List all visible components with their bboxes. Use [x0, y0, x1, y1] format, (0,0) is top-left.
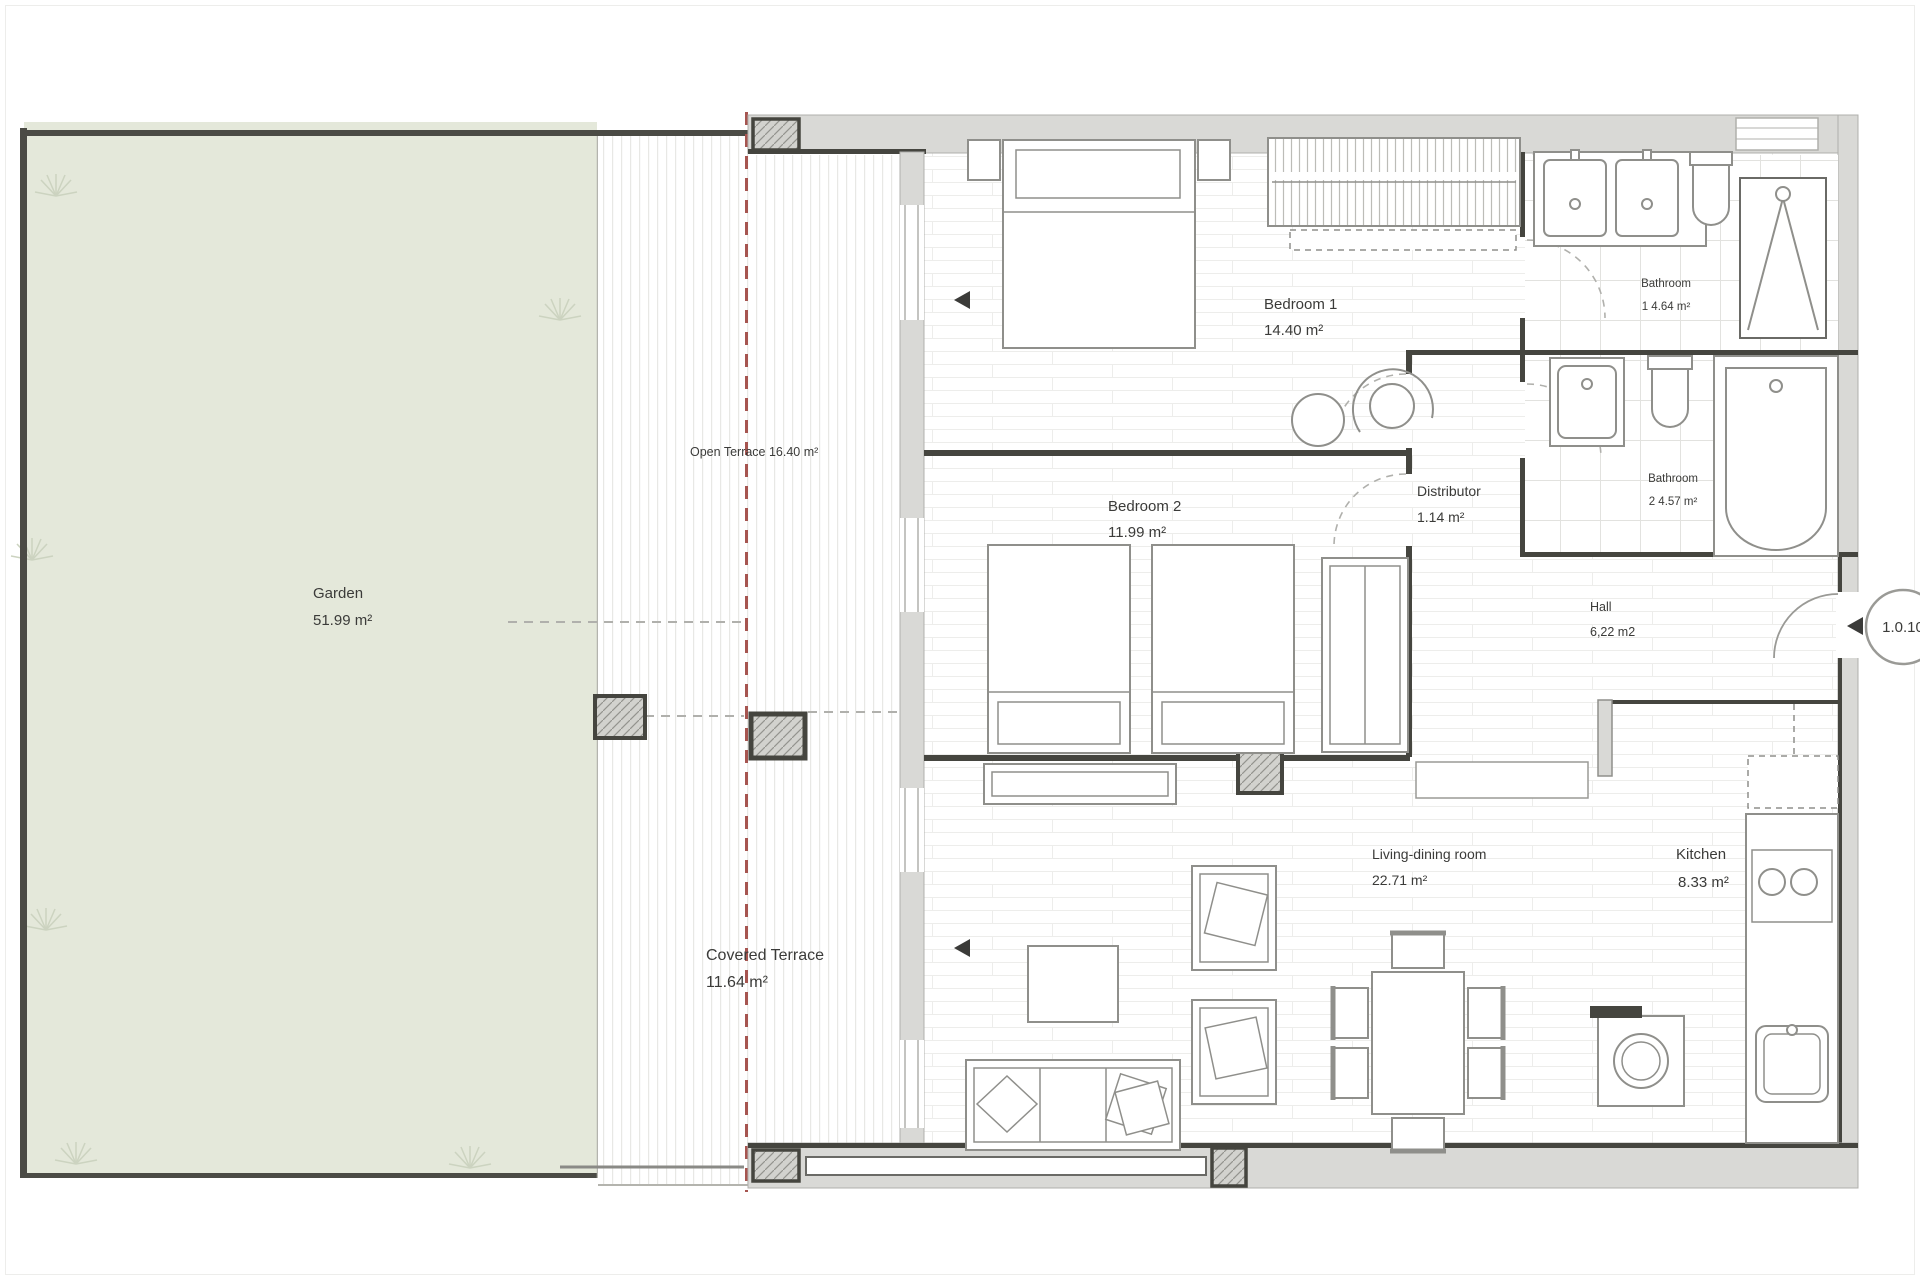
kitchen-sink-inner — [1764, 1034, 1820, 1094]
garden-area — [24, 122, 597, 1178]
bathroom2-label: Bathroom — [1648, 473, 1698, 485]
bathroom1-window — [1736, 118, 1818, 150]
armchair-2 — [1192, 1000, 1276, 1104]
wall-bath1-left-b — [1520, 318, 1525, 350]
armchair-1 — [1192, 866, 1276, 970]
toilet1-cistern — [1690, 152, 1732, 165]
covered-terrace-area: 11.64 m² — [706, 974, 769, 991]
chair-seat — [1370, 384, 1414, 428]
hall-label: Hall — [1590, 600, 1612, 614]
bed-pillow — [1016, 150, 1180, 198]
wall-kitchen-stub — [1598, 700, 1612, 776]
sink-2-tap — [1643, 150, 1651, 160]
covered-terrace-label: Covered Terrace — [706, 947, 824, 964]
toilet2-cistern — [1648, 356, 1692, 369]
hob-burner-2 — [1791, 869, 1817, 895]
washer-wall-stub — [1590, 1006, 1642, 1018]
bedroom2-furniture — [988, 545, 1408, 753]
bathroom1-area: 1 4.64 m² — [1642, 301, 1691, 313]
kitchen-area: 8.33 m² — [1678, 874, 1729, 891]
kitchen-upper-cabinet-dashed — [1748, 756, 1838, 808]
coffee-table — [1028, 946, 1118, 1022]
floor-plan-drawing: 1.0.10 Garden 51.99 m² Open Terrace 16.4… — [0, 0, 1920, 1280]
bottom-wall-window — [806, 1157, 1206, 1175]
sink-1-drain — [1570, 199, 1580, 209]
terrace-decking-right — [748, 155, 902, 1143]
column-top — [753, 119, 799, 150]
wall-bedroom1-bedroom2 — [924, 450, 1410, 456]
sink-2-drain — [1642, 199, 1652, 209]
toilet1-bowl — [1693, 165, 1729, 225]
window-bedroom1 — [900, 205, 924, 320]
dining-table — [1372, 972, 1464, 1114]
hall-sideboard — [1416, 762, 1588, 798]
bathroom1-label: Bathroom — [1641, 278, 1691, 290]
living-area: 22.71 m² — [1372, 872, 1428, 888]
bedroom1-label: Bedroom 1 — [1264, 296, 1337, 313]
sideboard-inner — [992, 772, 1168, 796]
wall-bedroom2-living — [924, 755, 1410, 761]
bathroom2-area: 2 4.57 m² — [1649, 496, 1698, 508]
wall-bath1-bath2 — [1520, 350, 1858, 355]
wall-bedroom1-distributor — [1406, 350, 1524, 355]
sink-3 — [1558, 366, 1616, 438]
dining-chair-left-1 — [1334, 988, 1368, 1038]
sink-3-drain — [1582, 379, 1592, 389]
single-bed-1-pillow — [998, 702, 1120, 744]
wall-distributor-stub-2 — [1406, 448, 1412, 474]
wall-bath2-left-a — [1520, 355, 1525, 382]
dining-chair-right-1 — [1468, 988, 1502, 1038]
window-living-1 — [900, 788, 924, 872]
shower — [1740, 178, 1826, 338]
wardrobe-shelf-dashed — [1290, 230, 1516, 250]
wall-hall-kitchen — [1598, 700, 1838, 704]
garden-left-wall — [20, 128, 27, 1178]
kitchen-label: Kitchen — [1676, 846, 1726, 863]
column-terrace-mid — [751, 714, 805, 758]
toilet2-bowl — [1652, 369, 1688, 427]
washing-machine — [1590, 1006, 1684, 1106]
bathtub-tap — [1770, 380, 1782, 392]
bathtub — [1714, 356, 1838, 556]
hob-burner-1 — [1759, 869, 1785, 895]
door-reference-label: 1.0.10 — [1882, 619, 1920, 636]
window-bedroom2 — [900, 518, 924, 612]
distributor-label: Distributor — [1417, 483, 1481, 499]
kitchen-tap — [1787, 1025, 1797, 1035]
garden-top-wall — [20, 130, 748, 136]
shower-head — [1776, 187, 1790, 201]
garden-area: 51.99 m² — [313, 612, 372, 629]
bedroom1-area: 14.40 m² — [1264, 322, 1323, 339]
open-terrace-label: Open Terrace 16.40 m² — [690, 445, 818, 459]
distributor-area: 1.14 m² — [1417, 509, 1465, 525]
column-bottom-mid — [1212, 1148, 1246, 1186]
floor-plan-page: 1.0.10 Garden 51.99 m² Open Terrace 16.4… — [0, 0, 1920, 1280]
bedroom2-label: Bedroom 2 — [1108, 498, 1181, 515]
wall-bath2-left-b — [1520, 458, 1525, 557]
sink-1-tap — [1571, 150, 1579, 160]
hall-area: 6,22 m2 — [1590, 625, 1635, 639]
single-bed-2-pillow — [1162, 702, 1284, 744]
garden-bottom-wall — [20, 1173, 598, 1178]
column-terrace-edge — [595, 696, 645, 738]
column-bottom — [753, 1150, 799, 1181]
wall-bottom-dark-edge — [748, 1143, 1858, 1148]
bedroom2-area: 11.99 m² — [1108, 524, 1166, 541]
terrace-decking-left — [598, 136, 748, 1185]
window-living-2 — [900, 1040, 924, 1128]
column-living-wall — [1238, 751, 1282, 793]
garden-label: Garden — [313, 585, 363, 602]
wall-right-edge-a — [1838, 557, 1842, 592]
nightstand-right — [1198, 140, 1230, 180]
dining-chair-top — [1392, 934, 1444, 968]
nightstand-left — [968, 140, 1000, 180]
living-label: Living-dining room — [1372, 846, 1486, 862]
stool — [1292, 394, 1344, 446]
dining-chair-left-2 — [1334, 1048, 1368, 1098]
sofa — [966, 1060, 1180, 1150]
dining-chair-right-2 — [1468, 1048, 1502, 1098]
dining-chair-bottom — [1392, 1118, 1444, 1150]
